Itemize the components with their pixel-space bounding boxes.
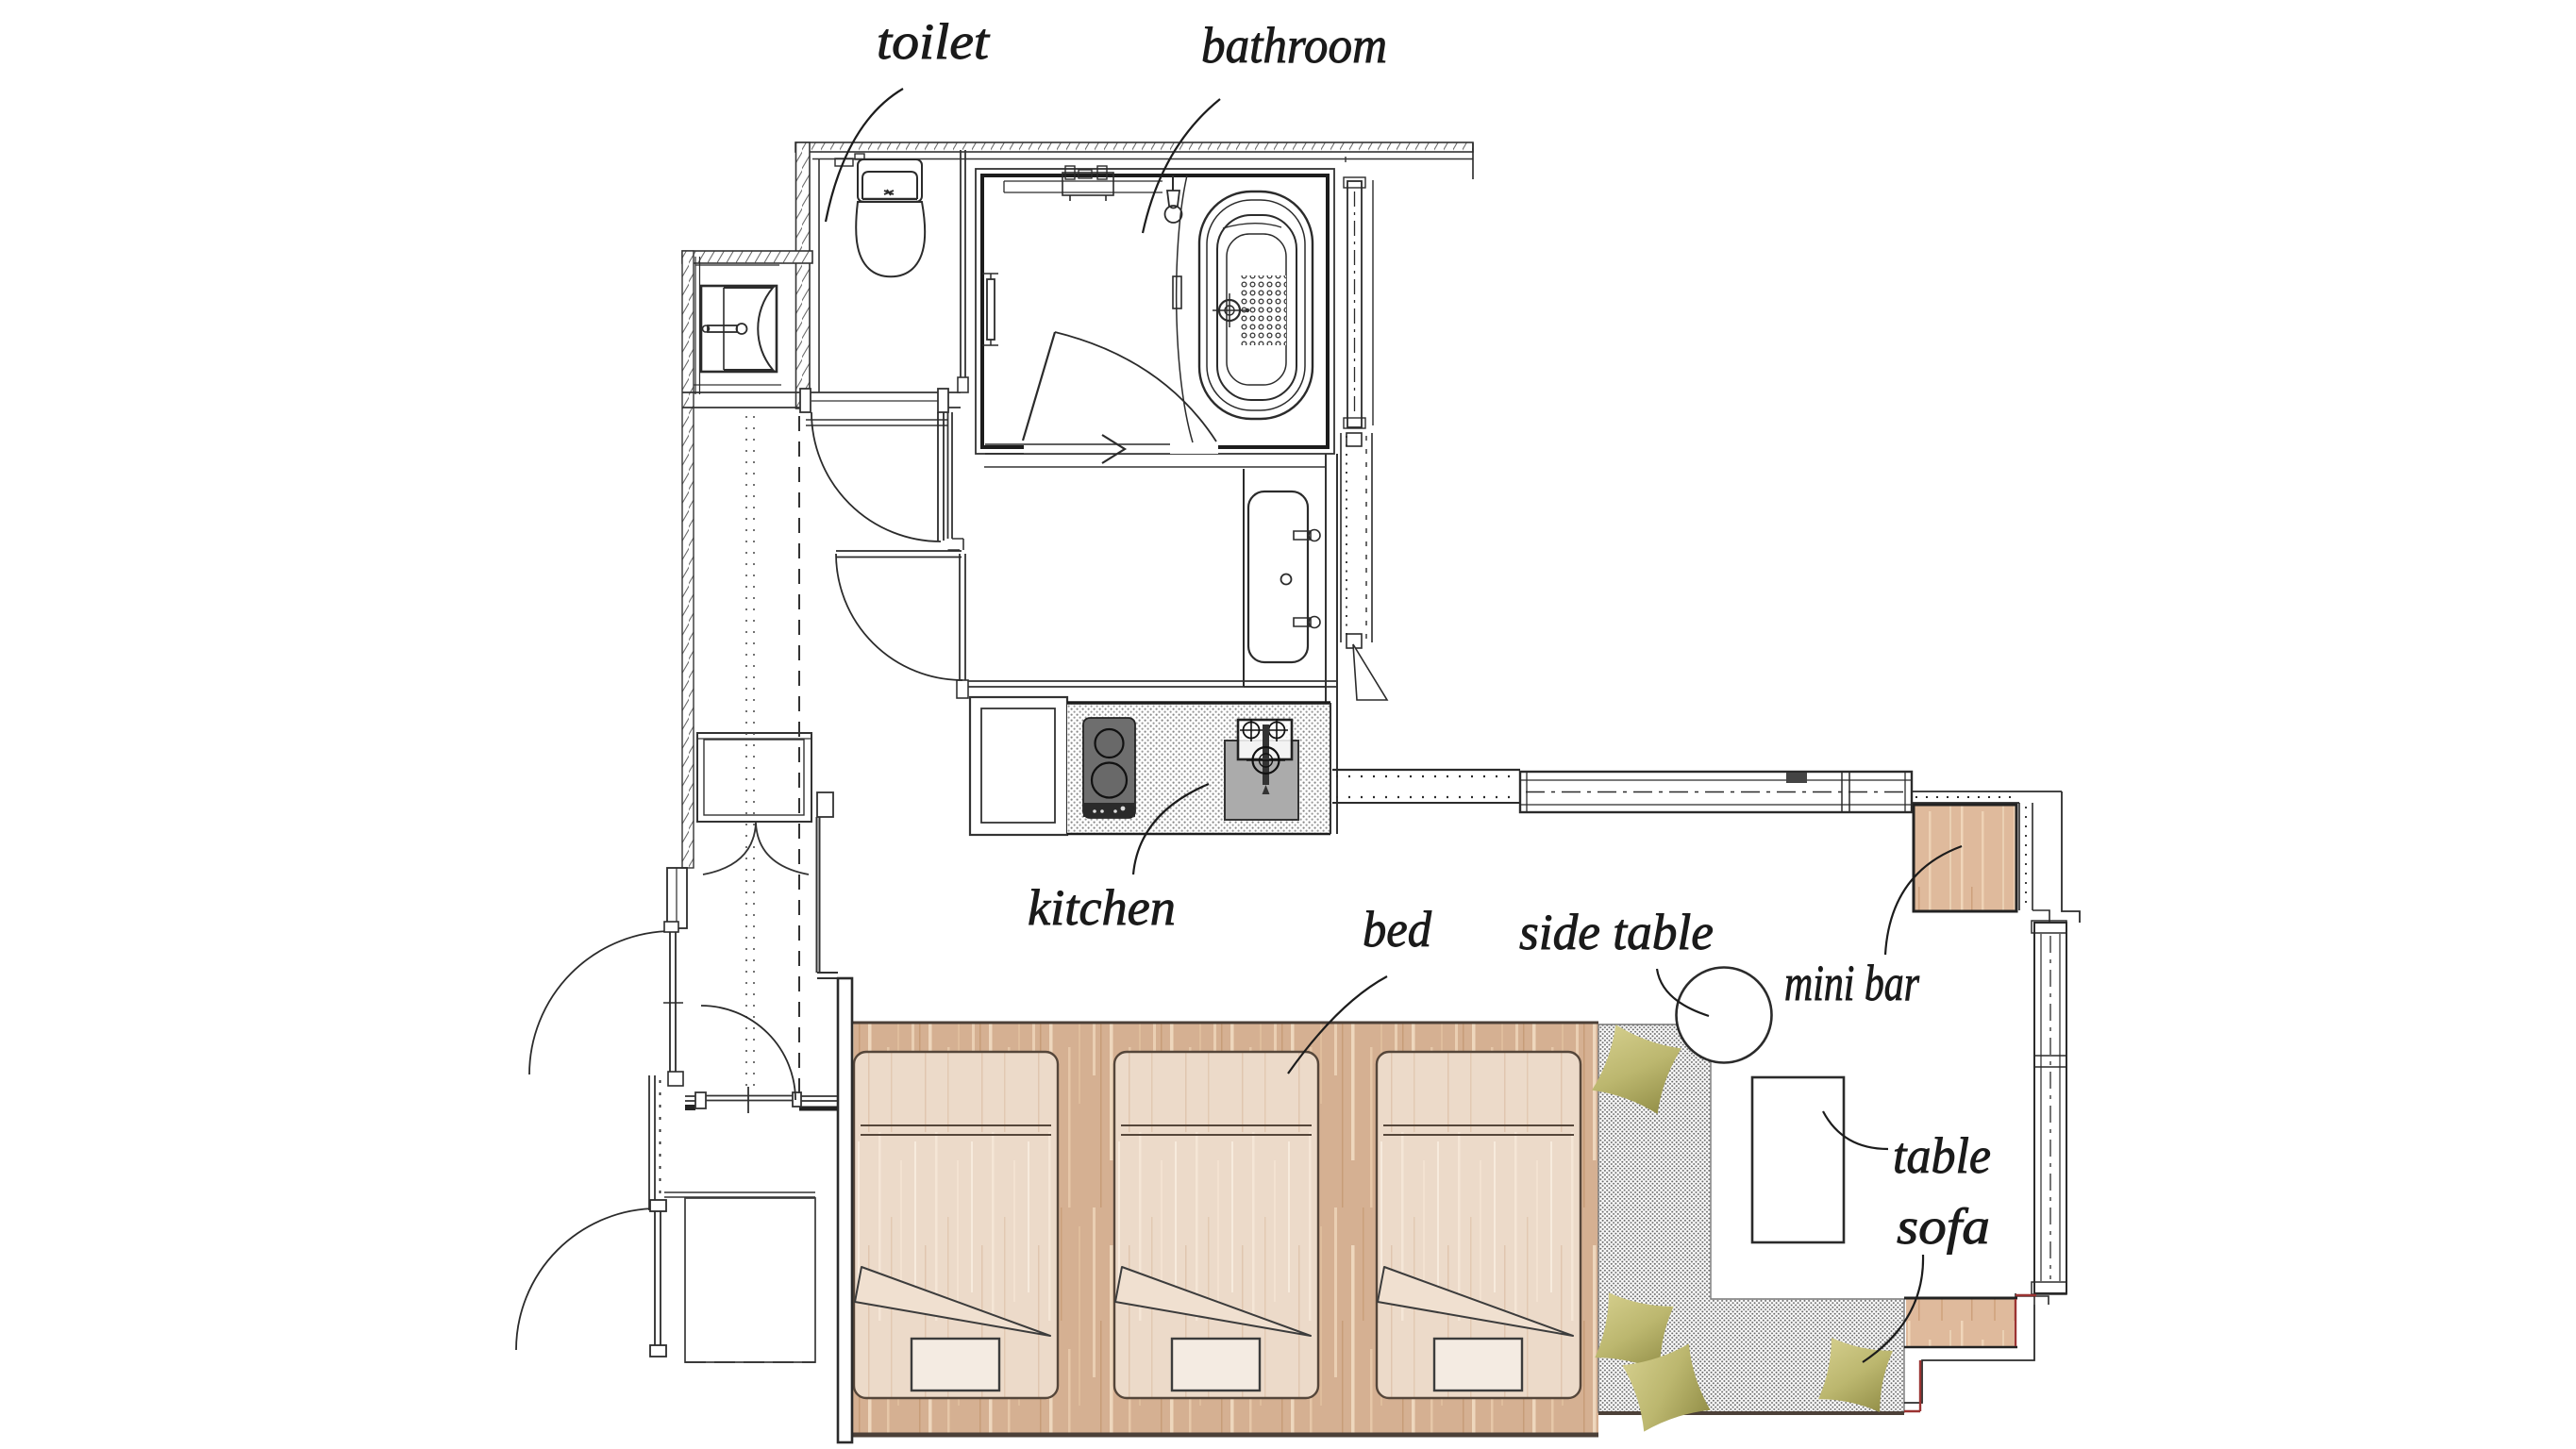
svg-text:bathroom: bathroom	[1201, 17, 1387, 74]
svg-text:toilet: toilet	[877, 13, 991, 70]
svg-text:kitchen: kitchen	[1028, 879, 1176, 936]
svg-text:table: table	[1893, 1127, 1991, 1184]
svg-text:sofa: sofa	[1897, 1198, 1990, 1255]
svg-text:mini bar: mini bar	[1784, 955, 1920, 1011]
svg-text:bed: bed	[1363, 901, 1432, 958]
svg-text:side table: side table	[1519, 904, 1714, 960]
